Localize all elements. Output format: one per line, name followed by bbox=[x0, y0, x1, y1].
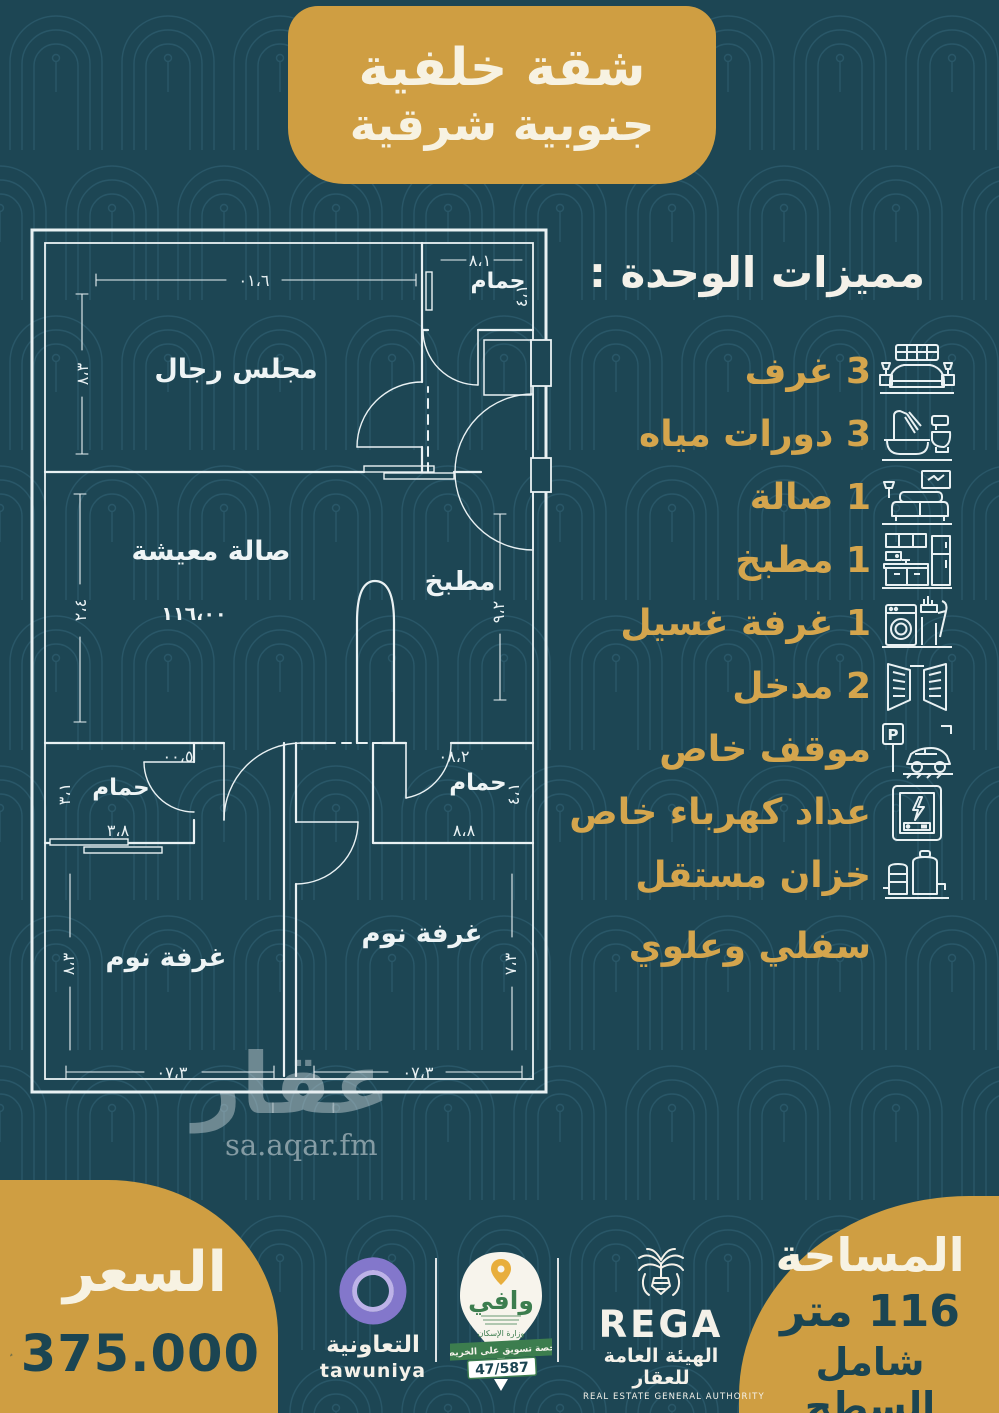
room-label-kitchen: مطبخ bbox=[425, 567, 496, 597]
wafi-ministry: وزارة الإسكان bbox=[478, 1329, 525, 1339]
feature-label: 2 مدخل bbox=[726, 666, 871, 707]
feature-label: خزان مستقل bbox=[629, 855, 871, 896]
price-row: 375.000 bbox=[10, 1325, 260, 1384]
sofa-icon bbox=[871, 468, 963, 528]
features-heading: مميزات الوحدة : bbox=[577, 248, 937, 297]
rega-icon bbox=[626, 1246, 696, 1300]
aqar-watermark: عقار bbox=[193, 1040, 391, 1128]
room-label-bed-left: غرفة نوم bbox=[106, 943, 227, 973]
banner-line2: جنوبية شرقية bbox=[350, 99, 655, 151]
wafi-license-number: 47/587 bbox=[475, 1360, 530, 1379]
area-note: شامل السطح bbox=[755, 1340, 985, 1413]
dim-majlis-width: ٠١،٦ bbox=[239, 271, 270, 290]
flyer-page: شقة خلفية جنوبية شرقية bbox=[0, 0, 999, 1413]
feature-row-rooms: 3 غرف bbox=[523, 340, 963, 403]
dim-living-width: ٠٠،٥ bbox=[163, 747, 194, 766]
feature-row-tank: خزان مستقل bbox=[523, 844, 963, 907]
feature-row-laundry: 1 غرفة غسيل bbox=[523, 592, 963, 655]
wafi-name: وافي bbox=[468, 1286, 534, 1316]
room-label-bath-right: حمام bbox=[449, 770, 507, 796]
feature-row-parking: P موقف خاص bbox=[523, 718, 963, 781]
feature-label: 1 مطبخ bbox=[729, 540, 871, 581]
dim-bath-top-height: ٤،١ bbox=[512, 285, 531, 307]
area-value: 116 متر bbox=[755, 1286, 985, 1337]
tawuniya-arabic-label: التعاونية bbox=[313, 1332, 433, 1358]
room-label-living: صالة معيشة bbox=[132, 536, 291, 567]
double-door-icon bbox=[871, 658, 963, 716]
feature-label: عداد كهرباء خاص bbox=[563, 792, 871, 833]
rega-name: REGA bbox=[583, 1306, 739, 1343]
floor-plan: مجلس رجال حمام صالة معيشة ١١٦،٠٠ مطبخ حم… bbox=[26, 222, 562, 1106]
dim-bath-left-height: ٣،١ bbox=[55, 783, 74, 805]
dim-bath-right-height: ٤،١ bbox=[504, 783, 523, 805]
wafi-logo: وافي وزارة الإسكان رخصة تسويق على الخريط… bbox=[450, 1246, 552, 1408]
saudi-riyal-icon bbox=[10, 1333, 13, 1377]
kitchen-icon bbox=[871, 530, 963, 592]
tawuniya-latin-label: tawuniya bbox=[313, 1360, 433, 1382]
rega-logo-block: REGA الهيئة العامة للعقار REAL ESTATE GE… bbox=[583, 1246, 739, 1402]
washing-machine-icon bbox=[871, 593, 963, 655]
dim-bed-right-height: ٧،٣ bbox=[501, 952, 520, 975]
feature-label: 1 صالة bbox=[744, 477, 871, 518]
logo-divider-right bbox=[557, 1258, 559, 1362]
bed-icon bbox=[871, 341, 963, 403]
bathtub-icon bbox=[871, 404, 963, 466]
dim-kitchen-height: ٩،٢ bbox=[489, 601, 508, 623]
dim-majlis-height: ٨،٣ bbox=[73, 362, 92, 385]
water-tank-icon bbox=[871, 846, 963, 906]
feature-row-bathrooms: 3 دورات مياه bbox=[523, 403, 963, 466]
features-list: 3 غرف 3 دورات مياه bbox=[523, 340, 963, 978]
dim-bath-right-width: ٨،٨ bbox=[453, 821, 476, 840]
feature-row-meter: عداد كهرباء خاص bbox=[523, 781, 963, 844]
banner-line1: شقة خلفية bbox=[358, 39, 645, 99]
dim-kitchen-width: ٠٨،٢ bbox=[439, 747, 470, 766]
price-label: السعر bbox=[40, 1240, 250, 1305]
dim-bath-top-width: ٨،١ bbox=[469, 251, 491, 270]
feature-label: موقف خاص bbox=[653, 729, 871, 770]
feature-row-entrances: 2 مدخل bbox=[523, 655, 963, 718]
feature-label: 1 غرفة غسيل bbox=[614, 603, 871, 644]
dim-bed-left-height: ٨،٣ bbox=[59, 952, 78, 975]
feature-label: سفلي وعلوي bbox=[623, 926, 871, 967]
svg-text:P: P bbox=[888, 726, 899, 744]
price-value: 375.000 bbox=[21, 1325, 260, 1384]
room-label-bath-left: حمام bbox=[92, 775, 150, 801]
parking-icon: P bbox=[871, 720, 963, 780]
feature-label: 3 دورات مياه bbox=[633, 414, 871, 455]
logo-divider-left bbox=[435, 1258, 437, 1362]
rega-arabic: الهيئة العامة للعقار bbox=[583, 1345, 739, 1389]
dim-bed-left-width: ٠٧،٣ bbox=[157, 1063, 188, 1082]
dim-living-height: ٢،٤ bbox=[71, 599, 90, 621]
living-area-value: ١١٦،٠٠ bbox=[161, 603, 226, 625]
area-label: المساحة bbox=[755, 1228, 985, 1282]
feature-label: 3 غرف bbox=[739, 351, 871, 392]
aqar-domain-watermark: sa.aqar.fm bbox=[225, 1128, 378, 1162]
tawuniya-logo bbox=[331, 1249, 415, 1333]
title-banner: شقة خلفية جنوبية شرقية bbox=[288, 6, 716, 184]
dim-bath-left-width: ٣،٨ bbox=[107, 821, 130, 840]
rega-english: REAL ESTATE GENERAL AUTHORITY bbox=[583, 1392, 739, 1402]
feature-row-kitchen: 1 مطبخ bbox=[523, 529, 963, 592]
room-label-bed-right: غرفة نوم bbox=[362, 919, 483, 949]
feature-row-hall: 1 صالة bbox=[523, 466, 963, 529]
feature-row-tank-levels: سفلي وعلوي bbox=[523, 915, 963, 978]
dim-bed-right-width: ٠٧،٣ bbox=[403, 1063, 434, 1082]
electric-meter-icon bbox=[871, 782, 963, 844]
room-label-majlis: مجلس رجال bbox=[154, 354, 317, 385]
